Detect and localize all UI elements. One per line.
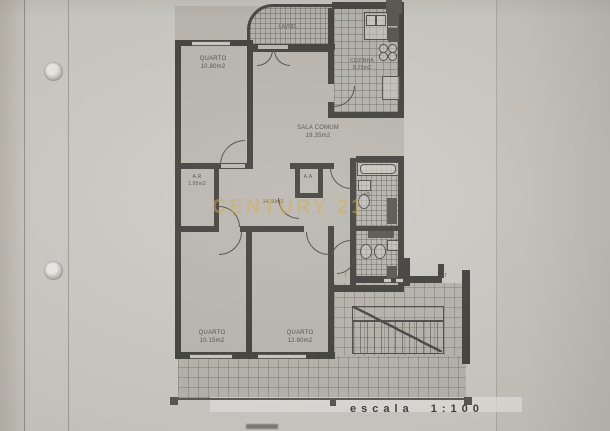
stove-burner: [379, 52, 388, 61]
vent: [384, 278, 391, 283]
room-name: QUARTO: [287, 330, 314, 338]
up-arrow-icon: ↑: [444, 272, 448, 279]
railing-post: [170, 397, 178, 405]
cabinet: [388, 28, 399, 42]
bottom-terrace-floor: [178, 356, 466, 398]
room-area: 10.80m2: [200, 64, 227, 72]
kitchen-sink: [366, 15, 376, 26]
room-name: COZINHA: [350, 58, 374, 65]
room-label-balcony: LAVND.: [279, 24, 298, 31]
room-label-ar: A.R 1.95m2: [188, 174, 206, 187]
room-label-quarto-bm: QUARTO 12.80m2: [287, 330, 314, 346]
bathroom-counter: [387, 198, 397, 224]
bathroom-counter: [387, 266, 397, 278]
room-label-quarto-top: QUARTO 10.80m2: [200, 56, 227, 72]
wall-segment: [246, 232, 252, 358]
window: [258, 354, 306, 359]
wall-segment: [295, 168, 300, 196]
room-name: QUARTO: [200, 56, 227, 64]
railing-post: [330, 399, 336, 406]
wall-segment: [332, 112, 404, 118]
bidet: [374, 244, 386, 259]
room-name: QUARTO: [199, 330, 226, 338]
room-label-aa: A.A: [304, 174, 313, 181]
wall-segment: [247, 44, 253, 165]
room-area: 10.15m2: [199, 338, 226, 346]
cabinet: [382, 76, 400, 100]
up-arrow-icon: ↑: [344, 272, 348, 279]
railing: [172, 398, 472, 400]
door-opening: [258, 45, 288, 49]
hole-punch: [44, 62, 63, 81]
room-area: 19.35m2: [297, 133, 339, 141]
sink: [358, 180, 371, 191]
wall-segment: [175, 226, 219, 232]
vent: [396, 278, 403, 283]
paper-right-shade: [497, 0, 610, 431]
toilet: [360, 244, 372, 259]
room-label-quarto-bl: QUARTO 10.15m2: [199, 330, 226, 346]
scanned-floorplan-photo: ↑ ↑ QUARTO 10.80m2 LAVND. COZINHA 8.25m2…: [0, 0, 610, 431]
stove-burner: [388, 52, 397, 61]
window: [190, 354, 232, 359]
stair-direction-line: [352, 306, 442, 352]
room-name: SALA COMUM: [297, 125, 339, 133]
margin-line: [68, 0, 69, 431]
wall-segment: [175, 40, 181, 358]
bathtub-inner: [360, 164, 396, 174]
room-label-kitchen: COZINHA 8.25m2: [350, 58, 374, 71]
scale-label: escala 1:100: [350, 403, 484, 415]
wall-segment: [328, 8, 334, 84]
cabinet: [388, 12, 399, 26]
wall-segment: [318, 168, 323, 196]
small-print-smudge: [246, 424, 278, 429]
paper-edge-line: [24, 0, 25, 431]
bathroom-counter: [368, 231, 394, 238]
wall-segment: [404, 258, 410, 286]
wall-segment: [462, 270, 470, 364]
kitchen-sink: [376, 15, 386, 26]
room-area: 8.25m2: [350, 65, 374, 72]
hole-punch: [44, 261, 63, 280]
sink: [387, 240, 399, 251]
room-area: 12.80m2: [287, 338, 314, 346]
century21-watermark: CENTURY 21: [212, 196, 365, 219]
room-label-living: SALA COMUM 19.35m2: [297, 125, 339, 141]
room-area: 1.95m2: [188, 181, 206, 188]
window: [192, 41, 230, 46]
wall-segment: [332, 285, 404, 292]
